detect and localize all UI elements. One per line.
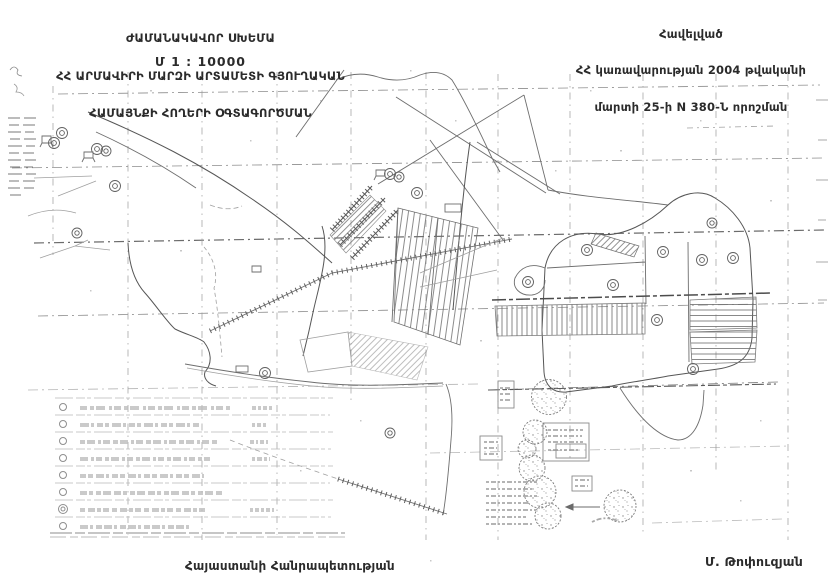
stamps-cluster <box>480 380 636 530</box>
signature-name: Մ. Թոփուզյան <box>705 556 825 569</box>
title-line-3: ՀԱՄԱՅՆՔԻ ՀՈՂԵՐԻ ՕԳՏԱԳՈՐԾՄԱՆ <box>28 107 373 120</box>
annex-line-3: մարտի 25-ի N 380-Ն որոշման <box>555 101 827 113</box>
well-icons <box>40 136 385 272</box>
map-title: ԺԱՄԱՆԱԿԱՎՈՐ ՍԽԵՄԱ ՀՀ ԱՐՄԱՎԻՐԻ ՄԱՐԶԻ ԱՐՏԱ… <box>28 7 373 145</box>
annex-reference: Հավելված ՀՀ կառավարության 2004 թվականի մ… <box>555 3 827 138</box>
scanned-map-sheet: ԺԱՄԱՆԱԿԱՎՈՐ ՍԽԵՄԱ ՀՀ ԱՐՄԱՎԻՐԻ ՄԱՐԶԻ ԱՐՏԱ… <box>0 0 830 579</box>
map-scale: Մ 1 : 10000 <box>28 56 373 69</box>
parcel-markers <box>40 128 739 439</box>
legend-table <box>50 398 345 537</box>
arrow-annotation <box>566 504 600 510</box>
settlement-area <box>210 142 512 380</box>
annex-line-1: Հավելված <box>555 28 827 40</box>
title-line-1: ԺԱՄԱՆԱԿԱՎՈՐ ՍԽԵՄԱ <box>28 32 373 45</box>
signatory-line-1: Հայաստանի Հանրապետության <box>185 558 485 575</box>
title-line-2: ՀՀ ԱՐՄԱՎԻՐԻ ՄԱՐԶԻ ԱՐՏԱՄԵՏԻ ԳՅՈՒՂԱԿԱՆ <box>28 70 373 83</box>
east-land-block <box>488 193 776 440</box>
signatory-title: Հայաստանի Հանրապետության կառավարության ա… <box>185 525 485 579</box>
annex-line-2: ՀՀ կառավարության 2004 թվականի <box>555 64 827 76</box>
